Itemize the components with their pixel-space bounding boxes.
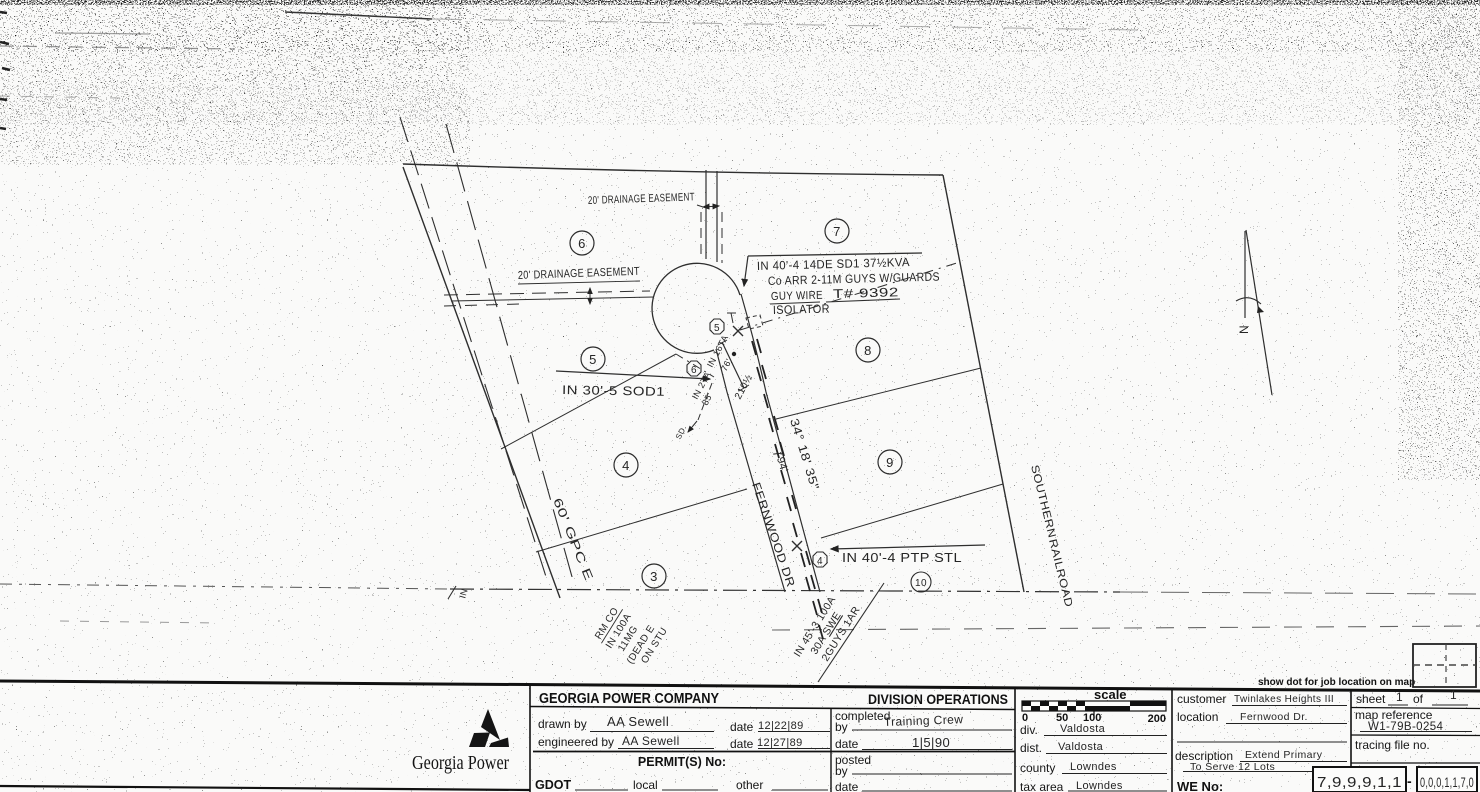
svg-text:DIVISION OPERATIONS: DIVISION OPERATIONS (868, 691, 1008, 707)
svg-text:Fernwood Dr.: Fernwood Dr. (1240, 711, 1308, 723)
svg-text:by: by (835, 764, 848, 778)
svg-text:Lowndes: Lowndes (1076, 780, 1123, 792)
svg-text:PERMIT(S) No:: PERMIT(S) No: (638, 755, 726, 769)
svg-text:engineered by: engineered by (538, 735, 614, 749)
svg-text:date: date (730, 737, 754, 751)
svg-text:IN 40'-4 PTP STL: IN 40'-4 PTP STL (842, 550, 962, 565)
svg-text:map reference: map reference (1355, 708, 1433, 722)
svg-text:date: date (835, 737, 859, 751)
svg-text:ISOLATOR: ISOLATOR (773, 302, 830, 317)
svg-text:sheet: sheet (1356, 692, 1386, 706)
svg-text:AA Sewell: AA Sewell (622, 734, 680, 748)
svg-text:3: 3 (650, 569, 658, 584)
svg-text:GEORGIA POWER COMPANY: GEORGIA POWER COMPANY (539, 691, 719, 707)
svg-text:7: 7 (833, 224, 841, 239)
svg-text:location: location (1177, 710, 1218, 724)
svg-text:12|27|89: 12|27|89 (757, 737, 803, 749)
svg-text:Training Crew: Training Crew (884, 712, 964, 729)
svg-text:customer: customer (1177, 692, 1226, 706)
svg-text:Twinlakes Heights III: Twinlakes Heights III (1234, 694, 1334, 705)
svg-text:Georgia Power: Georgia Power (412, 752, 509, 774)
svg-text:0,0,0,1,1,7,0: 0,0,0,1,1,7,0 (1420, 775, 1474, 790)
svg-text:by: by (835, 720, 848, 734)
svg-text:GDOT: GDOT (535, 778, 571, 792)
svg-text:IN 30'-5 SOD1: IN 30'-5 SOD1 (562, 383, 665, 399)
svg-text:12|22|89: 12|22|89 (758, 720, 804, 732)
svg-text:dist.: dist. (1020, 741, 1042, 755)
svg-text:7,9,9,9,1,1: 7,9,9,9,1,1 (1317, 774, 1402, 791)
svg-text:tracing file no.: tracing file no. (1355, 738, 1430, 752)
svg-text:scale: scale (1094, 687, 1127, 702)
svg-text:Lowndes: Lowndes (1070, 761, 1117, 773)
svg-text:8: 8 (864, 343, 872, 358)
svg-text:tax area: tax area (1020, 780, 1064, 792)
svg-text:Valdosta: Valdosta (1058, 741, 1104, 753)
svg-text:show dot for job location on m: show dot for job location on map (1258, 677, 1415, 688)
svg-text:1: 1 (1396, 690, 1403, 704)
svg-text:date: date (835, 780, 859, 792)
svg-text:9: 9 (886, 455, 894, 470)
svg-text:Valdosta: Valdosta (1060, 723, 1106, 735)
svg-text:4: 4 (817, 556, 823, 567)
svg-text:200: 200 (1148, 713, 1166, 725)
svg-text:drawn by: drawn by (538, 717, 587, 731)
svg-text:6: 6 (578, 236, 586, 251)
svg-text:T# 9392: T# 9392 (833, 285, 899, 301)
svg-text:-: - (1407, 773, 1412, 789)
svg-text:AA Sewell: AA Sewell (607, 714, 669, 729)
svg-text:WE No:: WE No: (1177, 779, 1223, 792)
svg-text:1|5|90: 1|5|90 (912, 735, 950, 750)
svg-text:other: other (736, 778, 763, 792)
svg-text:6: 6 (691, 365, 697, 376)
svg-text:date: date (730, 720, 754, 734)
svg-text:local: local (633, 778, 658, 792)
svg-text:10: 10 (915, 578, 927, 589)
svg-text:1: 1 (1450, 688, 1457, 702)
svg-text:Extend Primary: Extend Primary (1245, 749, 1323, 761)
svg-text:5: 5 (714, 323, 720, 334)
svg-text:div.: div. (1020, 723, 1038, 737)
svg-text:4: 4 (622, 458, 630, 473)
svg-text:N: N (1237, 325, 1251, 334)
svg-text:5: 5 (589, 352, 597, 367)
svg-text:of: of (1413, 692, 1424, 706)
svg-text:county: county (1020, 761, 1055, 775)
